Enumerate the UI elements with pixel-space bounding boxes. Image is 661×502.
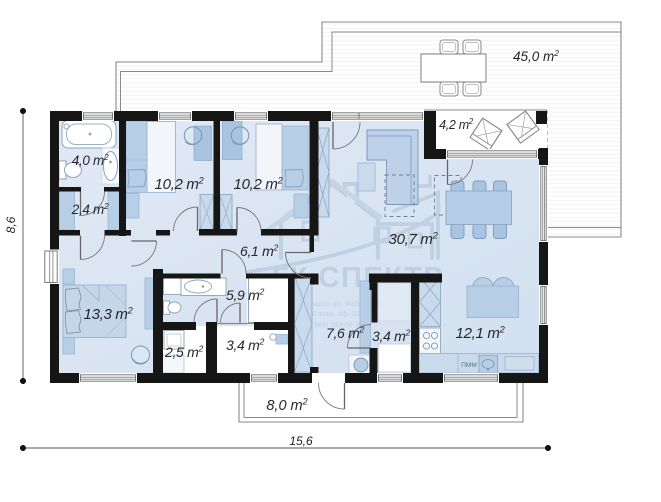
svg-text:8,6: 8,6: [4, 216, 18, 233]
svg-text:4,0 m2: 4,0 m2: [72, 152, 109, 168]
svg-text:8,0 m2: 8,0 m2: [266, 397, 307, 415]
svg-text:10,2 m2: 10,2 m2: [155, 175, 205, 193]
svg-text:ПММ: ПММ: [461, 362, 477, 369]
svg-text:7,6 m2: 7,6 m2: [326, 325, 365, 341]
svg-text:2,4 m2: 2,4 m2: [71, 201, 109, 217]
svg-text:45,0 m2: 45,0 m2: [513, 48, 559, 64]
svg-text:4,2 m2: 4,2 m2: [439, 117, 474, 132]
svg-text:2,5 m2: 2,5 m2: [164, 344, 204, 360]
svg-text:5,9 m2: 5,9 m2: [226, 287, 265, 303]
svg-text:3,4 m2: 3,4 m2: [226, 337, 265, 353]
svg-text:10,2 m2: 10,2 m2: [234, 175, 284, 193]
svg-text:30,7 m2: 30,7 m2: [389, 230, 439, 248]
svg-text:6,1 m2: 6,1 m2: [240, 243, 279, 259]
svg-text:15,6: 15,6: [289, 434, 313, 448]
svg-text:13,3 m2: 13,3 m2: [84, 305, 134, 323]
svg-text:3,4 m2: 3,4 m2: [372, 328, 411, 344]
svg-text:12,1 m2: 12,1 m2: [456, 324, 506, 342]
